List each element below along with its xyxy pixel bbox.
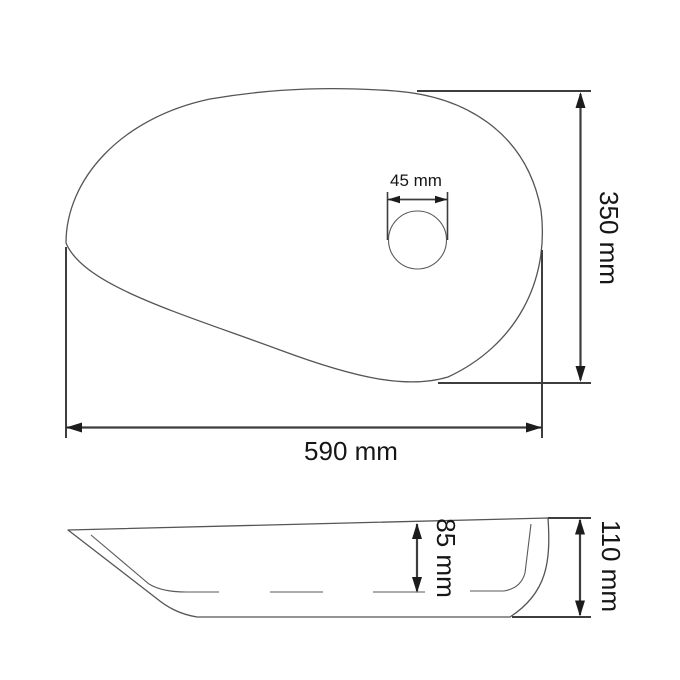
- inner-depth-label: 85 mm: [431, 518, 461, 597]
- arrowhead-down: [576, 366, 586, 382]
- top-view: 45 mm 350 mm 590 mm: [66, 89, 624, 466]
- basin-outline-top: [66, 89, 542, 382]
- arrowhead-left: [388, 196, 401, 203]
- basin-outline-side: [68, 518, 549, 617]
- arrowhead-up: [412, 523, 422, 539]
- arrowhead-up: [576, 92, 586, 108]
- arrowhead-right: [435, 196, 448, 203]
- drain-diameter-label: 45 mm: [390, 171, 442, 190]
- drain-diameter-dimension: 45 mm: [388, 171, 448, 240]
- drain-hole: [389, 211, 447, 269]
- arrowhead-down: [412, 577, 422, 593]
- inner-depth-dimension: 85 mm: [412, 518, 461, 597]
- arrowhead-up: [575, 519, 585, 535]
- arrowhead-down: [575, 601, 585, 617]
- total-height-label: 110 mm: [596, 520, 626, 612]
- inner-wall-right: [470, 524, 531, 591]
- height-dimension-label: 350 mm: [594, 191, 624, 285]
- arrowhead-right: [526, 423, 542, 433]
- width-dimension: 590 mm: [66, 247, 542, 466]
- total-height-dimension: 110 mm: [512, 518, 626, 617]
- basin-dimension-drawing: 45 mm 350 mm 590 mm: [0, 0, 680, 680]
- arrowhead-left: [66, 423, 82, 433]
- inner-wall-left: [91, 535, 219, 592]
- technical-drawing-page: 45 mm 350 mm 590 mm: [0, 0, 680, 680]
- side-view: 85 mm 110 mm: [68, 518, 626, 617]
- width-dimension-label: 590 mm: [304, 436, 398, 466]
